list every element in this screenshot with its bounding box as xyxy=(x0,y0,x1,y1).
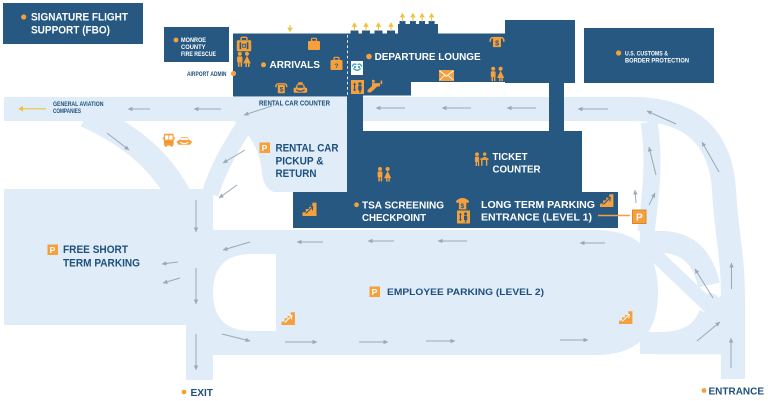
svg-text:SUPPORT (FBO): SUPPORT (FBO) xyxy=(31,25,110,37)
svg-text:TSA SCREENING: TSA SCREENING xyxy=(362,200,444,211)
svg-text:$: $ xyxy=(280,87,284,94)
svg-text:$: $ xyxy=(495,41,499,48)
svg-text:EMPLOYEE PARKING (LEVEL 2): EMPLOYEE PARKING (LEVEL 2) xyxy=(387,287,544,298)
svg-text:COUNTER: COUNTER xyxy=(493,165,541,176)
svg-text:P: P xyxy=(262,143,268,153)
svg-text:?: ? xyxy=(335,63,339,70)
svg-text:P: P xyxy=(50,245,56,255)
svg-text:SIGNATURE FLIGHT: SIGNATURE FLIGHT xyxy=(31,12,128,24)
svg-text:COMPANIES: COMPANIES xyxy=(53,108,81,115)
svg-text:FREE SHORT: FREE SHORT xyxy=(63,244,128,256)
svg-text:RETURN: RETURN xyxy=(276,168,317,180)
svg-text:P: P xyxy=(372,287,378,297)
svg-text:ENTRANCE: ENTRANCE xyxy=(709,387,765,398)
svg-text:AIRPORT ADMIN: AIRPORT ADMIN xyxy=(187,71,227,78)
svg-text:ARRIVALS: ARRIVALS xyxy=(270,60,321,71)
svg-text:GENERAL AVIATION: GENERAL AVIATION xyxy=(53,101,104,108)
svg-text:TERM PARKING: TERM PARKING xyxy=(63,258,140,270)
svg-text:ENTRANCE (LEVEL 1): ENTRANCE (LEVEL 1) xyxy=(481,213,592,224)
svg-text:P: P xyxy=(636,213,643,224)
svg-text:BORDER PROTECTION: BORDER PROTECTION xyxy=(625,58,689,65)
svg-text:EXIT: EXIT xyxy=(191,388,214,399)
svg-text:PICKUP &: PICKUP & xyxy=(276,156,324,168)
svg-text:$: $ xyxy=(461,203,465,210)
svg-text:MONROE: MONROE xyxy=(181,37,206,44)
svg-text:RENTAL CAR COUNTER: RENTAL CAR COUNTER xyxy=(259,101,330,108)
svg-text:RENTAL CAR: RENTAL CAR xyxy=(276,143,339,155)
svg-text:U.S. CUSTOMS &: U.S. CUSTOMS & xyxy=(625,51,668,58)
svg-text:COUNTY: COUNTY xyxy=(181,44,206,51)
svg-text:LONG TERM PARKING: LONG TERM PARKING xyxy=(481,200,595,211)
svg-text:CHECKPOINT: CHECKPOINT xyxy=(362,213,427,224)
svg-text:FIRE RESCUE: FIRE RESCUE xyxy=(181,51,216,58)
svg-text:TICKET: TICKET xyxy=(493,152,529,163)
svg-text:DEPARTURE LOUNGE: DEPARTURE LOUNGE xyxy=(375,52,481,63)
